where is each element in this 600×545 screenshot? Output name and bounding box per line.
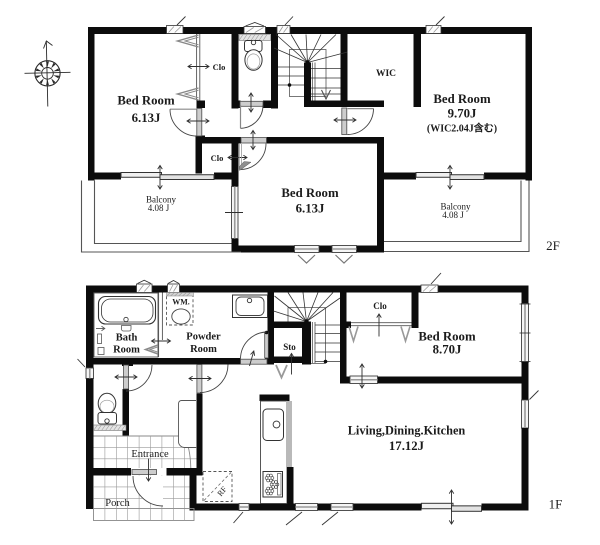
svg-text:6.13J: 6.13J — [132, 111, 161, 125]
svg-text:Porch: Porch — [105, 498, 130, 509]
svg-text:WIC: WIC — [376, 69, 396, 79]
svg-text:6.13J: 6.13J — [296, 202, 325, 216]
svg-text:Bed Room: Bed Room — [281, 186, 339, 200]
svg-text:Room: Room — [113, 345, 140, 356]
svg-text:2F: 2F — [546, 238, 560, 253]
svg-text:Clo: Clo — [211, 153, 224, 163]
svg-text:Room: Room — [190, 344, 217, 355]
svg-text:Bed Room: Bed Room — [117, 94, 175, 108]
svg-text:8.70J: 8.70J — [433, 343, 462, 357]
svg-text:1F: 1F — [549, 497, 563, 512]
svg-text:Living,Dining.Kitchen: Living,Dining.Kitchen — [348, 424, 466, 438]
svg-text:Clo: Clo — [373, 301, 387, 311]
svg-text:(WIC2.04J含む): (WIC2.04J含む) — [427, 122, 497, 135]
svg-text:Clo: Clo — [213, 62, 226, 72]
svg-text:WM.: WM. — [172, 298, 190, 307]
svg-text:4.08 J: 4.08 J — [148, 203, 170, 213]
svg-text:Sto: Sto — [283, 342, 296, 352]
svg-text:9.70J: 9.70J — [448, 107, 477, 121]
svg-text:17.12J: 17.12J — [389, 439, 425, 453]
svg-text:4.08 J: 4.08 J — [442, 210, 464, 220]
svg-text:Bed Room: Bed Room — [418, 330, 476, 344]
svg-text:Bed Room: Bed Room — [433, 92, 491, 106]
svg-text:Bath: Bath — [116, 333, 138, 344]
svg-text:Powder: Powder — [186, 332, 221, 343]
svg-text:Entrance: Entrance — [131, 449, 169, 460]
